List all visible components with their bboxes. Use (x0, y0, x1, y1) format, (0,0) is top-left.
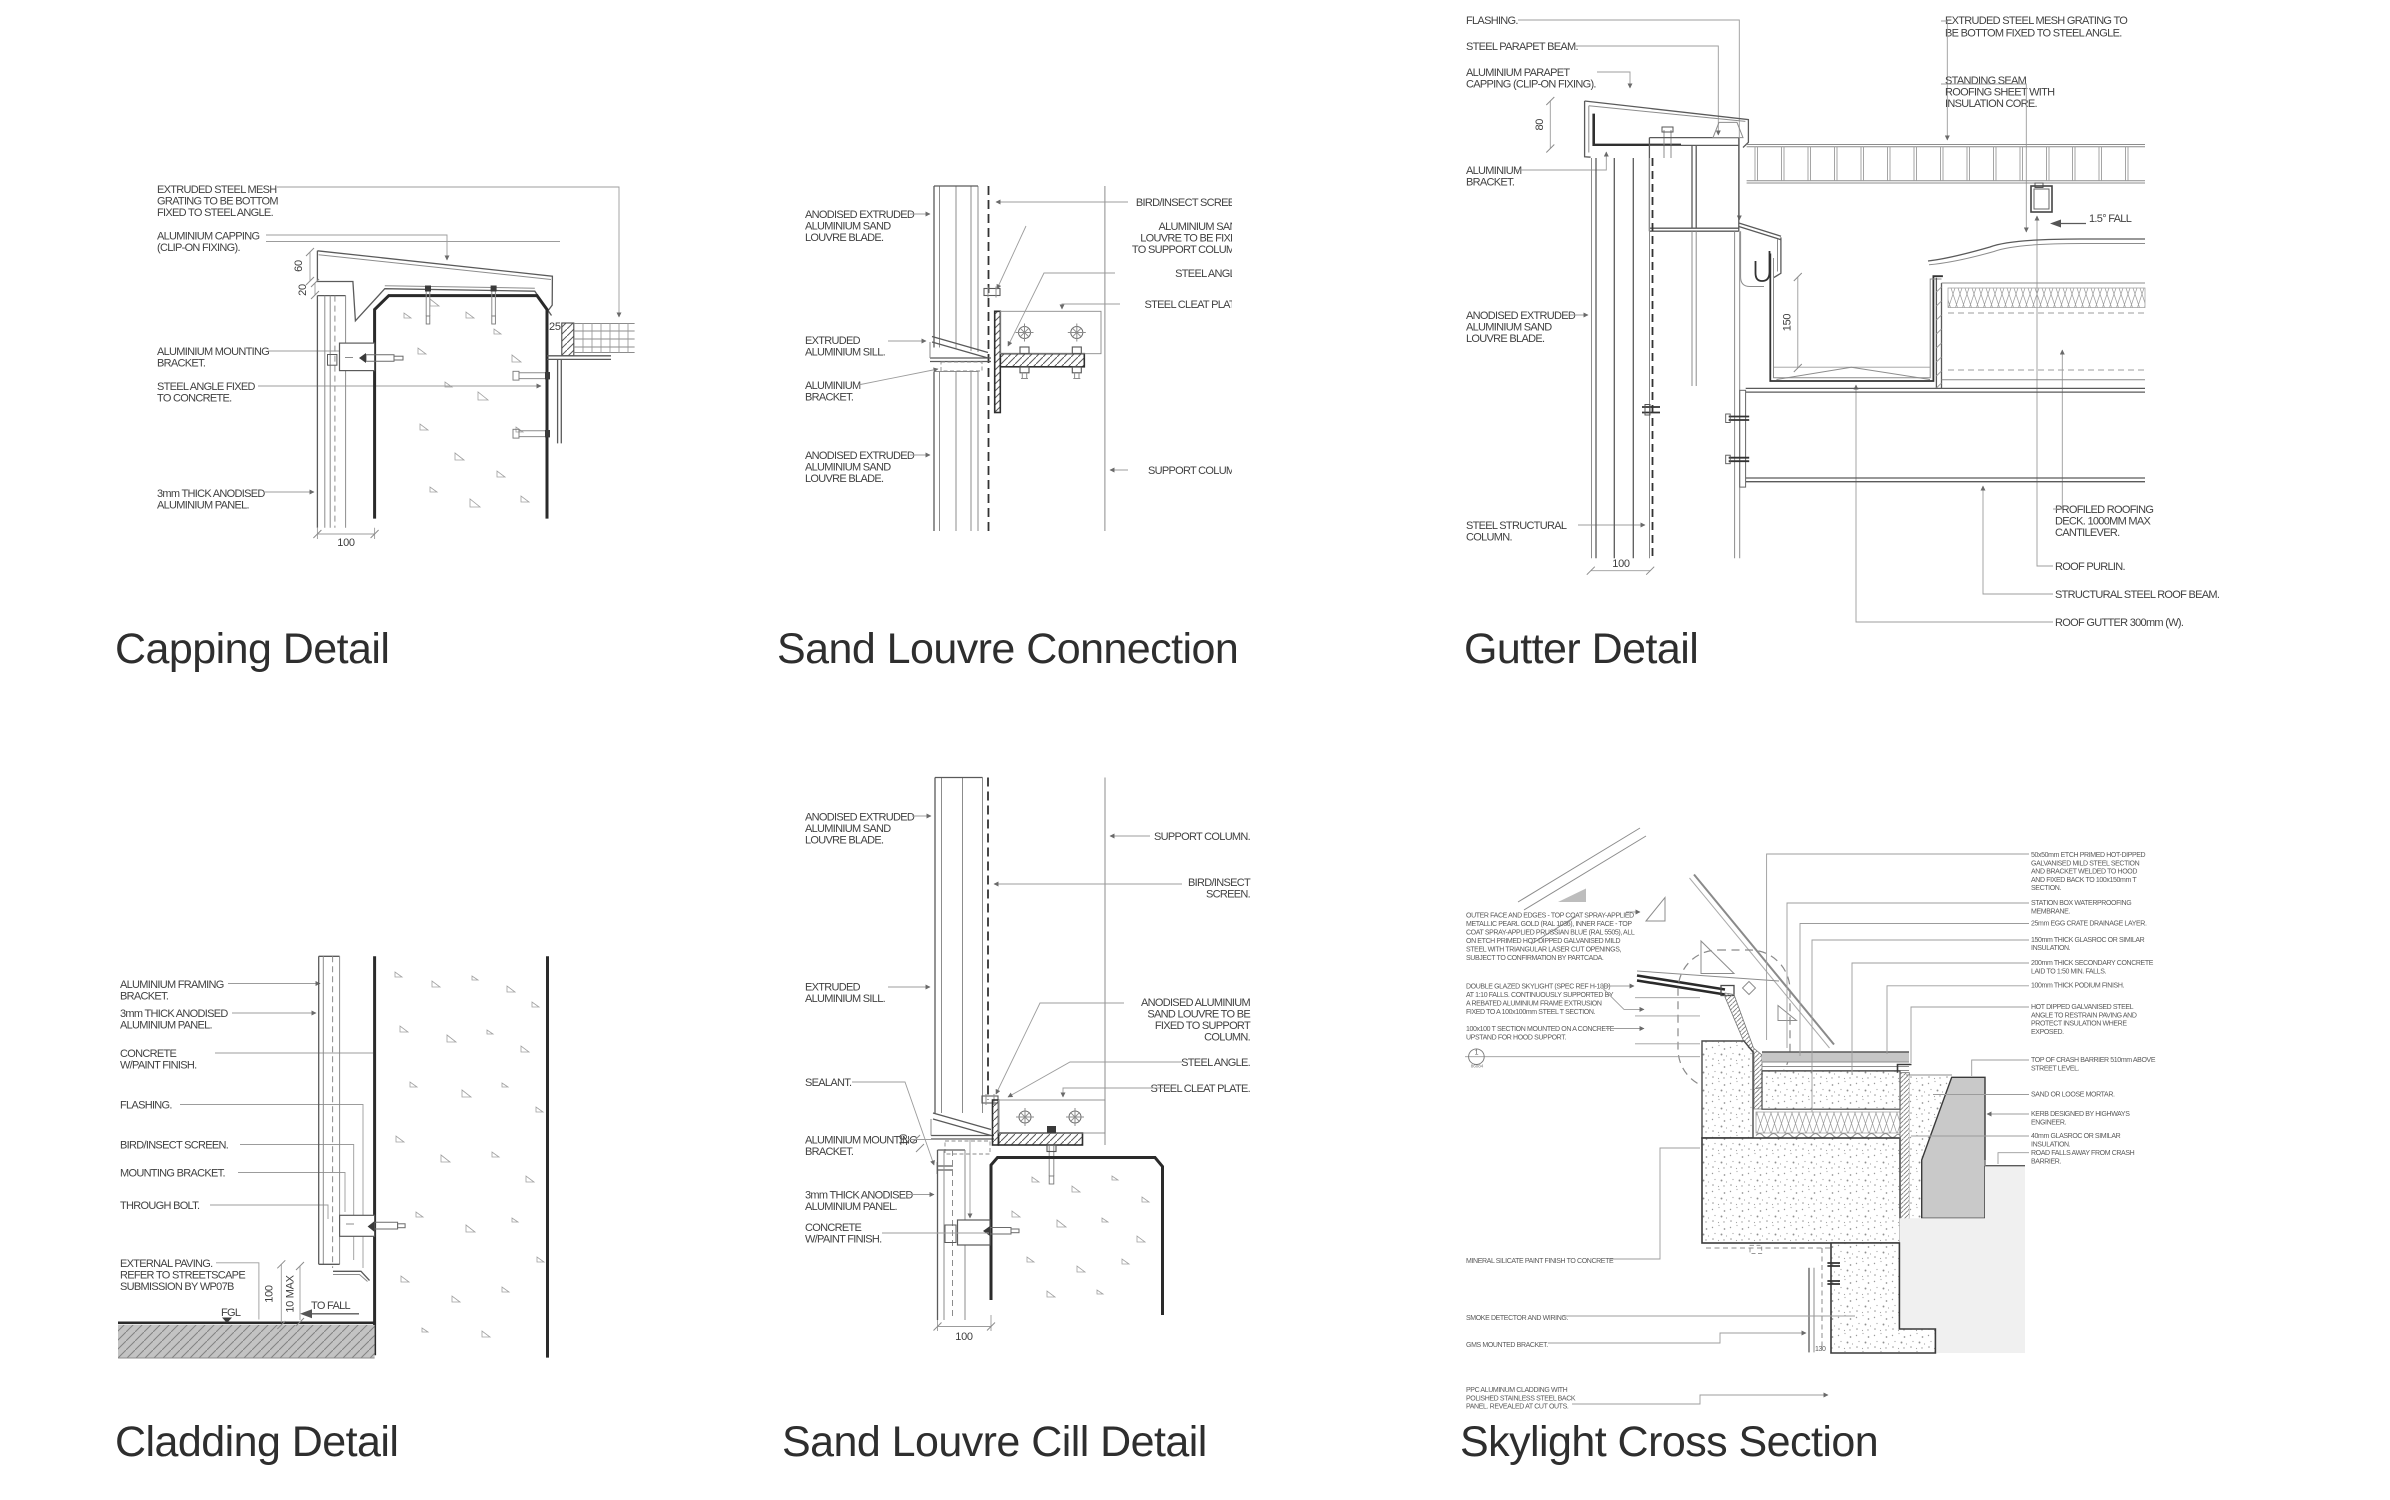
svg-text:BRACKET.: BRACKET. (120, 991, 169, 1003)
svg-text:SCREEN.: SCREEN. (1206, 889, 1251, 901)
svg-text:TO SUPPORT COLUMN.: TO SUPPORT COLUMN. (1132, 244, 1245, 256)
svg-text:LOUVRE BLADE.: LOUVRE BLADE. (1466, 333, 1545, 345)
svg-text:100: 100 (955, 1331, 973, 1343)
svg-text:ALUMINIUM SAND: ALUMINIUM SAND (1158, 221, 1244, 233)
svg-text:COLUMN.: COLUMN. (1466, 532, 1512, 544)
svg-text:3mm THICK ANODISED: 3mm THICK ANODISED (157, 488, 265, 500)
svg-text:CONCRETE: CONCRETE (120, 1048, 176, 1060)
svg-text:1.5° FALL: 1.5° FALL (2089, 213, 2132, 225)
svg-text:LAID TO 1:50 MIN. FALLS.: LAID TO 1:50 MIN. FALLS. (2031, 968, 2106, 975)
svg-text:LOUVRE BLADE.: LOUVRE BLADE. (805, 473, 884, 485)
svg-text:BIRD/INSECT: BIRD/INSECT (1188, 877, 1251, 889)
svg-text:BRACKET.: BRACKET. (157, 358, 206, 370)
svg-text:HOT DIPPED GALVANISED STEEL: HOT DIPPED GALVANISED STEEL (2031, 1004, 2134, 1011)
svg-text:EXTRUDED: EXTRUDED (805, 982, 861, 994)
svg-text:METALLIC PEARL GOLD (RAL 1036): METALLIC PEARL GOLD (RAL 1036), INNER FA… (1466, 921, 1632, 928)
svg-text:CANTILEVER.: CANTILEVER. (2055, 527, 2120, 539)
svg-text:ANODISED EXTRUDED: ANODISED EXTRUDED (805, 450, 915, 462)
svg-text:LOUVRE BLADE.: LOUVRE BLADE. (805, 835, 884, 847)
svg-text:PPC ALUMINUM CLADDING WITH: PPC ALUMINUM CLADDING WITH (1466, 1387, 1568, 1394)
svg-text:PROFILED ROOFING: PROFILED ROOFING (2055, 504, 2153, 516)
svg-text:BIRD/INSECT SCREEN.: BIRD/INSECT SCREEN. (1136, 197, 1245, 209)
svg-text:ALUMINIUM MOUNTING: ALUMINIUM MOUNTING (157, 346, 269, 358)
svg-text:DOUBLE GLAZED SKYLIGHT (SPEC R: DOUBLE GLAZED SKYLIGHT (SPEC REF H-13D) (1466, 984, 1610, 991)
svg-text:Sand Louvre Connection: Sand Louvre Connection (777, 625, 1238, 673)
svg-text:BIRD/INSECT SCREEN.: BIRD/INSECT SCREEN. (120, 1140, 229, 1152)
svg-text:DECK. 1000MM MAX: DECK. 1000MM MAX (2055, 516, 2152, 528)
svg-text:EXPOSED.: EXPOSED. (2031, 1029, 2064, 1036)
svg-text:A REBATED ALUMINIUM FRAME EXTR: A REBATED ALUMINIUM FRAME EXTRUSION (1466, 1001, 1602, 1008)
svg-text:3mm THICK ANODISED: 3mm THICK ANODISED (120, 1008, 228, 1020)
svg-text:REFER TO STREETSCAPE: REFER TO STREETSCAPE (120, 1270, 245, 1282)
svg-text:MOUNTING BRACKET.: MOUNTING BRACKET. (120, 1168, 225, 1180)
svg-text:GALVANISED MILD STEEL SECTION: GALVANISED MILD STEEL SECTION (2031, 860, 2140, 867)
svg-text:THROUGH BOLT.: THROUGH BOLT. (120, 1200, 200, 1212)
svg-text:ALUMINIUM SILL.: ALUMINIUM SILL. (805, 993, 886, 1005)
svg-text:80: 80 (1534, 119, 1546, 131)
svg-text:ALUMINIUM: ALUMINIUM (805, 380, 861, 392)
svg-text:ENGINEER.: ENGINEER. (2031, 1119, 2067, 1126)
svg-text:ANODISED ALUMINIUM: ANODISED ALUMINIUM (1141, 997, 1251, 1009)
svg-text:AT 1:10 FALLS. CONTINUOUSLY SU: AT 1:10 FALLS. CONTINUOUSLY SUPPORTED BY (1466, 992, 1614, 999)
svg-text:ALUMINIUM: ALUMINIUM (1466, 165, 1522, 177)
svg-text:PANEL. REVEALED AT CUT OUTS.: PANEL. REVEALED AT CUT OUTS. (1466, 1404, 1569, 1411)
svg-text:3mm THICK ANODISED: 3mm THICK ANODISED (805, 1190, 913, 1202)
svg-text:ANODISED EXTRUDED: ANODISED EXTRUDED (1466, 310, 1576, 322)
svg-text:200mm THICK SECONDARY CONCRETE: 200mm THICK SECONDARY CONCRETE (2031, 960, 2154, 967)
svg-text:INSULATION.: INSULATION. (2031, 1141, 2071, 1148)
svg-text:ALUMINIUM MOUNTING: ALUMINIUM MOUNTING (805, 1135, 917, 1147)
svg-text:W/PAINT FINISH.: W/PAINT FINISH. (805, 1234, 882, 1246)
svg-text:BARRIER.: BARRIER. (2031, 1158, 2061, 1165)
svg-text:KERB DESIGNED BY HIGHWAYS: KERB DESIGNED BY HIGHWAYS (2031, 1111, 2130, 1118)
svg-text:COAT SPRAY-APPLIED PRUSSIAN BL: COAT SPRAY-APPLIED PRUSSIAN BLUE (RAL 55… (1466, 930, 1635, 937)
svg-text:FLASHING.: FLASHING. (120, 1100, 172, 1112)
svg-text:ALUMINIUM FRAMING: ALUMINIUM FRAMING (120, 979, 224, 991)
svg-text:CONCRETE: CONCRETE (805, 1222, 861, 1234)
svg-text:AND BRACKET WELDED TO HOOD: AND BRACKET WELDED TO HOOD (2031, 869, 2137, 876)
svg-text:FIXED TO A 100x100mm STEEL T S: FIXED TO A 100x100mm STEEL T SECTION. (1466, 1009, 1596, 1016)
svg-text:60: 60 (293, 260, 305, 272)
svg-text:ALUMINIUM PANEL.: ALUMINIUM PANEL. (120, 1020, 213, 1032)
svg-text:STATION BOX WATERPROOFING: STATION BOX WATERPROOFING (2031, 900, 2131, 907)
svg-text:EXTRUDED STEEL MESH GRATING TO: EXTRUDED STEEL MESH GRATING TO (1945, 15, 2128, 27)
svg-text:TO FALL: TO FALL (311, 1300, 350, 1312)
svg-text:SEALANT.: SEALANT. (805, 1077, 852, 1089)
svg-text:86084: 86084 (1471, 1064, 1484, 1069)
svg-text:UPSTAND FOR HOOD SUPPORT.: UPSTAND FOR HOOD SUPPORT. (1466, 1034, 1566, 1041)
svg-text:100mm THICK PODIUM FINISH.: 100mm THICK PODIUM FINISH. (2031, 983, 2124, 990)
svg-text:STEEL CLEAT PLATE.: STEEL CLEAT PLATE. (1151, 1083, 1251, 1095)
svg-text:CAPPING (CLIP-ON FIXING).: CAPPING (CLIP-ON FIXING). (1466, 79, 1596, 91)
svg-text:20: 20 (297, 284, 309, 296)
svg-text:FIXED TO STEEL ANGLE.: FIXED TO STEEL ANGLE. (157, 207, 274, 219)
svg-text:GMS MOUNTED BRACKET.: GMS MOUNTED BRACKET. (1466, 1342, 1548, 1349)
svg-text:BRACKET.: BRACKET. (805, 392, 854, 404)
svg-text:100: 100 (337, 537, 355, 549)
svg-text:ROOFING SHEET WITH: ROOFING SHEET WITH (1945, 87, 2055, 99)
svg-text:FLASHING.: FLASHING. (1466, 15, 1518, 27)
svg-text:25mm EGG CRATE DRAINAGE LAYER.: 25mm EGG CRATE DRAINAGE LAYER. (2031, 921, 2147, 928)
svg-text:FIXED TO SUPPORT: FIXED TO SUPPORT (1155, 1020, 1251, 1032)
svg-text:POLISHED STAINLESS STEEL BACK: POLISHED STAINLESS STEEL BACK (1466, 1395, 1576, 1402)
svg-text:LOUVRE BLADE.: LOUVRE BLADE. (805, 232, 884, 244)
svg-text:STEEL CLEAT PLATE.: STEEL CLEAT PLATE. (1145, 299, 1245, 311)
svg-text:LOUVRE TO BE FIXED: LOUVRE TO BE FIXED (1140, 233, 1245, 245)
svg-text:Capping Detail: Capping Detail (115, 625, 389, 673)
svg-text:GRATING TO BE BOTTOM: GRATING TO BE BOTTOM (157, 196, 278, 208)
svg-text:EXTRUDED: EXTRUDED (805, 335, 861, 347)
svg-text:STEEL ANGLE FIXED: STEEL ANGLE FIXED (157, 381, 255, 393)
svg-text:50x50mm ETCH PRIMED HOT-DIPPED: 50x50mm ETCH PRIMED HOT-DIPPED (2031, 852, 2146, 859)
svg-text:Skylight Cross Section: Skylight Cross Section (1460, 1418, 1878, 1466)
svg-text:Sand Louvre Cill Detail: Sand Louvre Cill Detail (782, 1418, 1207, 1466)
svg-text:100x100 T SECTION MOUNTED ON A: 100x100 T SECTION MOUNTED ON A CONCRETE (1466, 1026, 1615, 1033)
svg-text:ANGLE TO RESTRAIN PAVING AND: ANGLE TO RESTRAIN PAVING AND (2031, 1012, 2137, 1019)
svg-text:ROAD FALLS AWAY FROM CRASH: ROAD FALLS AWAY FROM CRASH (2031, 1150, 2135, 1157)
svg-text:SMOKE DETECTOR AND WIRING.: SMOKE DETECTOR AND WIRING. (1466, 1315, 1568, 1322)
svg-text:150mm THICK GLASROC OR SIMILAR: 150mm THICK GLASROC OR SIMILAR (2031, 937, 2145, 944)
svg-text:100: 100 (1612, 558, 1630, 570)
svg-text:MEMBRANE.: MEMBRANE. (2031, 908, 2070, 915)
svg-text:ROOF GUTTER 300mm (W).: ROOF GUTTER 300mm (W). (2055, 617, 2184, 629)
svg-text:BRACKET.: BRACKET. (1466, 177, 1515, 189)
svg-text:ALUMINIUM SAND: ALUMINIUM SAND (1466, 322, 1552, 334)
svg-text:ALUMINIUM PARAPET: ALUMINIUM PARAPET (1466, 67, 1570, 79)
svg-text:W/PAINT FINISH.: W/PAINT FINISH. (120, 1060, 197, 1072)
svg-text:EXTERNAL PAVING.: EXTERNAL PAVING. (120, 1258, 213, 1270)
svg-text:FGL: FGL (221, 1307, 241, 1319)
svg-text:AND FIXED BACK TO 100x150mm T: AND FIXED BACK TO 100x150mm T (2031, 877, 2137, 884)
svg-text:ALUMINIUM SAND: ALUMINIUM SAND (805, 462, 891, 474)
svg-text:STEEL PARAPET BEAM.: STEEL PARAPET BEAM. (1466, 41, 1578, 53)
svg-text:100: 100 (264, 1285, 276, 1303)
svg-text:Cladding Detail: Cladding Detail (115, 1418, 398, 1466)
svg-text:SECTION.: SECTION. (2031, 885, 2061, 892)
svg-text:(CLIP-ON FIXING).: (CLIP-ON FIXING). (157, 242, 240, 254)
svg-text:10 MAX: 10 MAX (285, 1274, 297, 1312)
svg-text:TOP OF CRASH BARRIER 510mm ABO: TOP OF CRASH BARRIER 510mm ABOVE (2031, 1057, 2156, 1064)
svg-text:STRUCTURAL STEEL ROOF BEAM.: STRUCTURAL STEEL ROOF BEAM. (2055, 589, 2220, 601)
svg-text:1: 1 (1475, 1050, 1479, 1057)
svg-text:40mm GLASROC OR SIMILAR: 40mm GLASROC OR SIMILAR (2031, 1133, 2121, 1140)
svg-text:STEEL STRUCTURAL: STEEL STRUCTURAL (1466, 520, 1567, 532)
svg-text:SUPPORT COLUMN.: SUPPORT COLUMN. (1148, 465, 1245, 477)
svg-text:ALUMINIUM SAND: ALUMINIUM SAND (805, 823, 891, 835)
svg-text:STEEL WITH TRIANGULAR LASER CU: STEEL WITH TRIANGULAR LASER CUT OPENINGS… (1466, 947, 1621, 954)
svg-text:25: 25 (549, 321, 561, 333)
svg-text:ANODISED EXTRUDED: ANODISED EXTRUDED (805, 209, 915, 221)
svg-text:BE BOTTOM FIXED TO STEEL ANGLE: BE BOTTOM FIXED TO STEEL ANGLE. (1945, 28, 2122, 40)
svg-text:BRACKET.: BRACKET. (805, 1146, 854, 1158)
svg-text:TO CONCRETE.: TO CONCRETE. (157, 393, 232, 405)
svg-text:SAND LOUVRE TO BE: SAND LOUVRE TO BE (1147, 1009, 1250, 1021)
svg-text:STREET LEVEL.: STREET LEVEL. (2031, 1065, 2080, 1072)
svg-text:SUBMISSION BY WP07B: SUBMISSION BY WP07B (120, 1281, 234, 1293)
svg-text:INSULATION.: INSULATION. (2031, 945, 2071, 952)
svg-text:ALUMINIUM SAND: ALUMINIUM SAND (805, 221, 891, 233)
svg-text:PROTECT INSULATION WHERE: PROTECT INSULATION WHERE (2031, 1021, 2127, 1028)
svg-text:150: 150 (1781, 314, 1793, 332)
svg-text:SUBJECT TO CONFIRMATION BY PAR: SUBJECT TO CONFIRMATION BY PARTCADA. (1466, 955, 1604, 962)
svg-text:ANODISED EXTRUDED: ANODISED EXTRUDED (805, 812, 915, 824)
svg-text:ALUMINIUM PANEL.: ALUMINIUM PANEL. (157, 500, 250, 512)
svg-text:MINERAL SILICATE PAINT FINISH: MINERAL SILICATE PAINT FINISH TO CONCRET… (1466, 1258, 1614, 1265)
svg-text:ALUMINIUM SILL.: ALUMINIUM SILL. (805, 347, 886, 359)
svg-text:ROOF PURLIN.: ROOF PURLIN. (2055, 561, 2125, 573)
svg-text:Gutter Detail: Gutter Detail (1464, 625, 1698, 673)
svg-text:OUTER FACE AND EDGES - TOP COA: OUTER FACE AND EDGES - TOP COAT SPRAY-AP… (1466, 913, 1634, 920)
svg-text:ALUMINIUM PANEL.: ALUMINIUM PANEL. (805, 1201, 898, 1213)
svg-text:SAND OR LOOSE MORTAR.: SAND OR LOOSE MORTAR. (2031, 1092, 2115, 1099)
svg-text:STANDING SEAM: STANDING SEAM (1945, 75, 2027, 87)
svg-text:COLUMN.: COLUMN. (1204, 1032, 1250, 1044)
svg-text:ALUMINIUM CAPPING: ALUMINIUM CAPPING (157, 231, 260, 243)
svg-text:STEEL ANGLE.: STEEL ANGLE. (1181, 1057, 1250, 1069)
svg-text:130: 130 (1815, 1346, 1826, 1353)
svg-text:INSULATION CORE.: INSULATION CORE. (1945, 98, 2038, 110)
svg-text:EXTRUDED STEEL MESH: EXTRUDED STEEL MESH (157, 184, 277, 196)
svg-text:ON ETCH PRIMED HOT-DIPPED GALV: ON ETCH PRIMED HOT-DIPPED GALVANISED MIL… (1466, 938, 1620, 945)
svg-text:SUPPORT COLUMN.: SUPPORT COLUMN. (1154, 831, 1251, 843)
